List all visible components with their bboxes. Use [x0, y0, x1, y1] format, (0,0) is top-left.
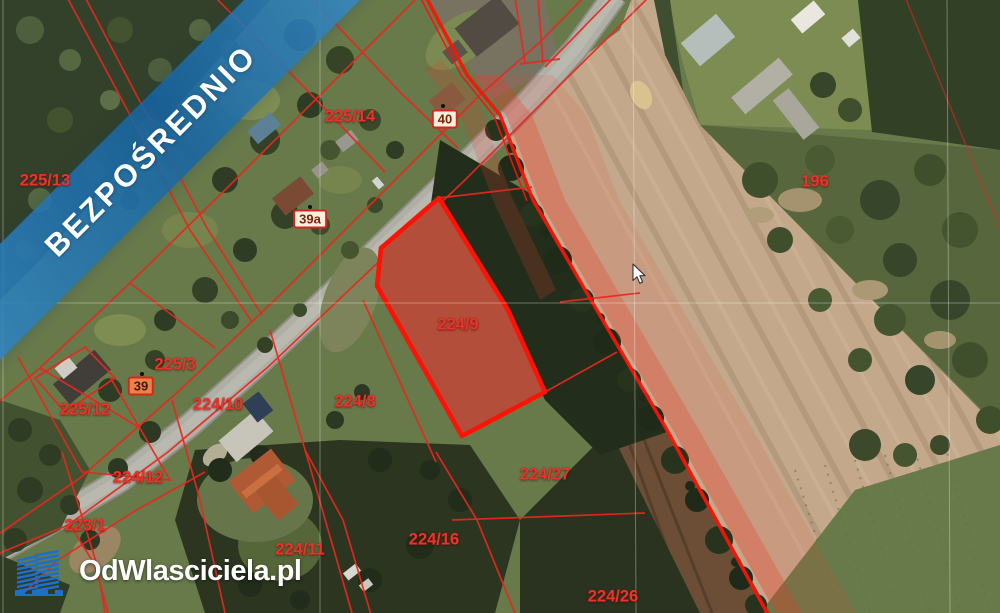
address-marker-40: 40	[432, 110, 458, 129]
parcel-label-224-26: 224/26	[588, 588, 638, 607]
parcel-label-224-10: 224/10	[193, 396, 243, 415]
parcel-label-223-1: 223/1	[64, 517, 105, 536]
parcel-label-225-13: 225/13	[20, 172, 70, 191]
satellite-map-canvas[interactable]	[0, 0, 1000, 613]
forest-northeast	[858, 0, 1000, 150]
address-dot-39	[140, 372, 144, 376]
address-marker-39: 39	[128, 377, 154, 396]
address-marker-39a: 39a	[293, 210, 327, 229]
address-dot-39a	[308, 205, 312, 209]
parcel-label-196: 196	[801, 173, 829, 192]
address-dot-40	[441, 104, 445, 108]
parcel-label-225-3: 225/3	[154, 356, 195, 375]
parcel-label-224-9: 224/9	[437, 316, 478, 335]
parcel-label-224-8: 224/8	[334, 393, 375, 412]
building-towers-icon	[12, 544, 66, 598]
listing-map-screenshot: BEZPOŚREDNIO 225/13 225/14 196 225/3 225…	[0, 0, 1000, 613]
parcel-label-224-12: 224/12	[113, 469, 163, 488]
parcel-label-224-16: 224/16	[409, 531, 459, 550]
parcel-label-225-12: 225/12	[60, 401, 110, 420]
parcel-label-225-14: 225/14	[325, 108, 375, 127]
mouse-cursor	[632, 263, 648, 285]
parcel-label-224-27: 224/27	[520, 466, 570, 485]
site-logo: OdWlasciciela.pl	[12, 544, 301, 598]
site-logo-text: OdWlasciciela.pl	[79, 555, 301, 588]
